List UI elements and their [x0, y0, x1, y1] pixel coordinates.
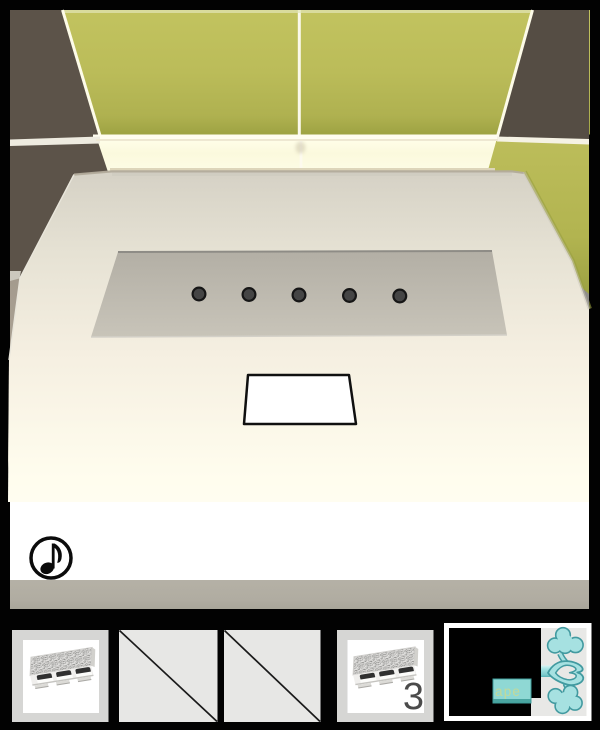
svg-text:ape: ape: [495, 684, 521, 699]
svg-text:3: 3: [403, 676, 424, 718]
